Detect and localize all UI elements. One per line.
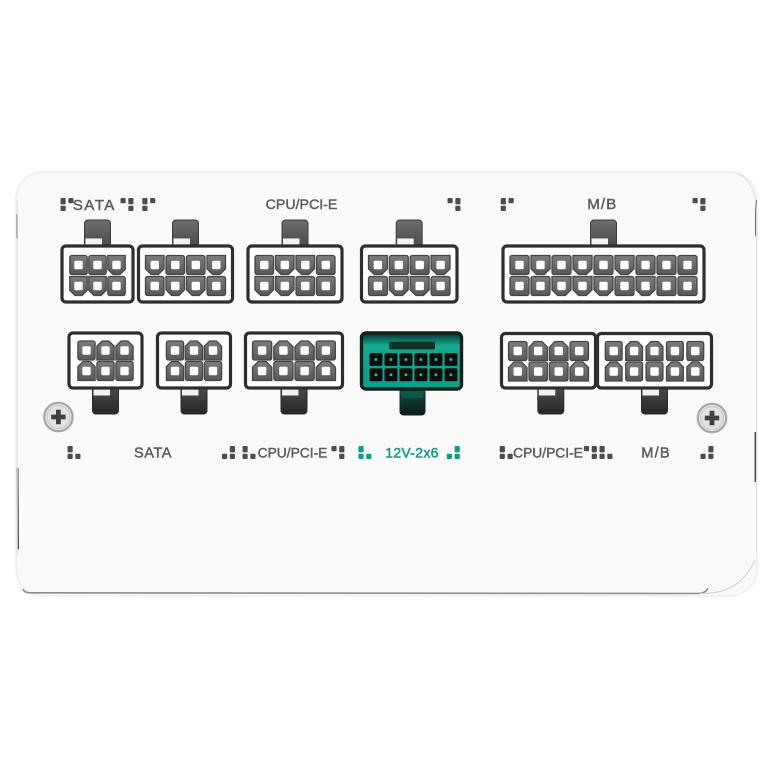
svg-text:CPU/PCI-E: CPU/PCI-E (266, 197, 338, 213)
svg-text:M/B: M/B (587, 196, 617, 213)
svg-text:CPU/PCI-E: CPU/PCI-E (513, 446, 583, 461)
svg-text:12V-2x6: 12V-2x6 (385, 445, 438, 461)
svg-text:SATA: SATA (134, 446, 172, 462)
svg-text:SATA: SATA (73, 197, 116, 214)
svg-text:CPU/PCI-E: CPU/PCI-E (258, 446, 328, 461)
svg-text:M/B: M/B (641, 446, 671, 462)
